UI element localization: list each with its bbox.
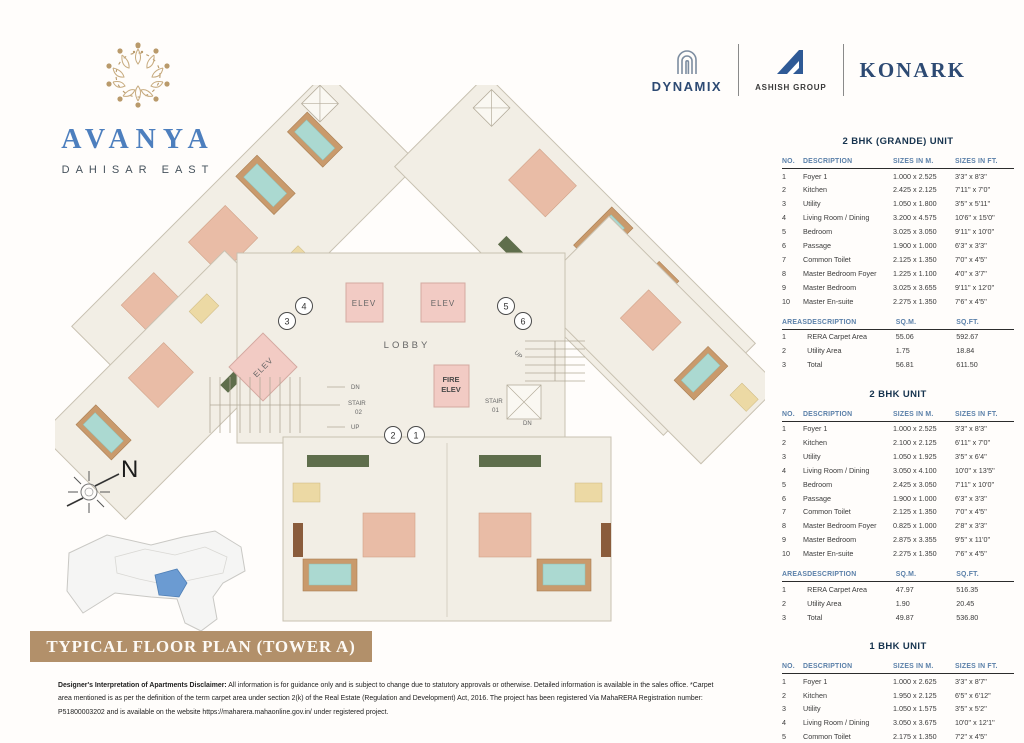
unit-marker: 4: [296, 298, 313, 315]
table-cell: Living Room / Dining: [803, 463, 893, 477]
column-header: DESCRIPTION: [807, 569, 896, 582]
column-header: SIZES IN M.: [893, 156, 955, 169]
table-row: 2Utility Area1.9020.45: [782, 596, 1014, 610]
unit-tables-column: 2 BHK (GRANDE) UNIT NO.DESCRIPTIONSIZES …: [782, 136, 1014, 743]
table-cell: 3'5'' x 5'2'': [955, 702, 1014, 716]
table-cell: 6: [782, 238, 803, 252]
table-cell: Master Bedroom Foyer: [803, 266, 893, 280]
table-cell: Total: [807, 610, 896, 624]
table-cell: 3'3'' x 8'7'': [955, 674, 1014, 688]
table-cell: 1.900 x 1.000: [893, 491, 955, 505]
table-cell: Living Room / Dining: [803, 211, 893, 225]
table-cell: 10'0'' x 12'1'': [955, 716, 1014, 730]
table-cell: 2.175 x 1.350: [893, 730, 955, 743]
table-cell: 49.87: [896, 610, 957, 624]
table-cell: 516.35: [956, 582, 1014, 596]
table-cell: 20.45: [956, 596, 1014, 610]
table-row: 6Passage1.900 x 1.0006'3'' x 3'3'': [782, 238, 1014, 252]
table-cell: 56.81: [896, 358, 957, 372]
stair01-dn-label: DN: [523, 421, 532, 427]
table-cell: Kitchen: [803, 688, 893, 702]
column-header: DESCRIPTION: [803, 409, 893, 422]
table-cell: 9'11'' x 12'0'': [955, 280, 1014, 294]
table-cell: 2.275 x 1.350: [893, 547, 955, 561]
table-cell: 3.025 x 3.655: [893, 280, 955, 294]
table-cell: Bedroom: [803, 477, 893, 491]
table-cell: Kitchen: [803, 435, 893, 449]
table-cell: Utility Area: [807, 344, 896, 358]
column-header: SIZES IN FT.: [955, 661, 1014, 674]
unit-section-2bhk-grande: 2 BHK (GRANDE) UNIT NO.DESCRIPTIONSIZES …: [782, 136, 1014, 372]
table-cell: 536.80: [956, 610, 1014, 624]
column-header: NO.: [782, 156, 803, 169]
table-cell: 6'11'' x 7'0'': [955, 435, 1014, 449]
table-row: 2Kitchen1.950 x 2.1256'5'' x 6'12'': [782, 688, 1014, 702]
table-cell: 2.275 x 1.350: [893, 294, 955, 308]
table-cell: 3'5'' x 6'4'': [955, 449, 1014, 463]
unit-section-2bhk: 2 BHK UNIT NO.DESCRIPTIONSIZES IN M.SIZE…: [782, 389, 1014, 625]
table-cell: 3: [782, 702, 803, 716]
column-header: SQ.FT.: [956, 317, 1014, 330]
table-cell: Common Toilet: [803, 505, 893, 519]
table-row: 3Total49.87536.80: [782, 610, 1014, 624]
table-row: 3Total56.81611.50: [782, 358, 1014, 372]
table-row: 9Master Bedroom3.025 x 3.6559'11'' x 12'…: [782, 280, 1014, 294]
table-cell: 3.025 x 3.050: [893, 225, 955, 239]
svg-text:3: 3: [284, 317, 289, 327]
table-cell: Passage: [803, 491, 893, 505]
table-row: 4Living Room / Dining3.200 x 4.57510'6''…: [782, 211, 1014, 225]
unit-marker: 1: [408, 427, 425, 444]
unit-marker: 5: [498, 298, 515, 315]
table-cell: 5: [782, 477, 803, 491]
table-cell: 1: [782, 169, 803, 183]
column-header: DESCRIPTION: [807, 317, 896, 330]
lobby-label: LOBBY: [384, 340, 431, 351]
table-cell: 2.125 x 1.350: [893, 505, 955, 519]
table-cell: 2: [782, 688, 803, 702]
table-cell: 7'6'' x 4'5'': [955, 547, 1014, 561]
unit-marker: 3: [279, 313, 296, 330]
table-cell: 10: [782, 547, 803, 561]
table-row: 8Master Bedroom Foyer1.225 x 1.1004'0'' …: [782, 266, 1014, 280]
table-cell: 1: [782, 674, 803, 688]
table-cell: 7'11'' x 7'0'': [955, 183, 1014, 197]
table-row: 3Utility1.050 x 1.9253'5'' x 6'4'': [782, 449, 1014, 463]
table-row: 4Living Room / Dining3.050 x 4.10010'0''…: [782, 463, 1014, 477]
site-key-map: [67, 531, 245, 631]
table-cell: 3: [782, 610, 807, 624]
table-cell: 1.000 x 2.625: [893, 674, 955, 688]
table-cell: 8: [782, 519, 803, 533]
sizes-table: NO.DESCRIPTIONSIZES IN M.SIZES IN FT.1Fo…: [782, 661, 1014, 743]
table-row: 5Bedroom2.425 x 3.0507'11'' x 10'0'': [782, 477, 1014, 491]
table-cell: 2.125 x 1.350: [893, 252, 955, 266]
table-cell: 2.100 x 2.125: [893, 435, 955, 449]
table-cell: Master Bedroom Foyer: [803, 519, 893, 533]
disclaimer-lead: Designer's Interpretation of Apartments …: [58, 682, 227, 689]
table-cell: 2: [782, 344, 807, 358]
table-row: 1Foyer 11.000 x 2.5253'3'' x 8'3'': [782, 421, 1014, 435]
table-row: 6Passage1.900 x 1.0006'3'' x 3'3'': [782, 491, 1014, 505]
table-cell: Master Bedroom: [803, 280, 893, 294]
table-cell: 3'5'' x 5'11'': [955, 197, 1014, 211]
table-cell: 7'11'' x 10'0'': [955, 477, 1014, 491]
stair02-dn-label: DN: [351, 385, 360, 391]
table-cell: 1.050 x 1.800: [893, 197, 955, 211]
table-cell: 1.000 x 2.525: [893, 421, 955, 435]
table-cell: 10: [782, 294, 803, 308]
table-cell: 7'6'' x 4'5'': [955, 294, 1014, 308]
table-cell: 2: [782, 435, 803, 449]
table-cell: Master En-suite: [803, 294, 893, 308]
column-header: AREAS: [782, 569, 807, 582]
table-cell: 5: [782, 730, 803, 743]
table-cell: 1.90: [896, 596, 957, 610]
table-cell: Master Bedroom: [803, 533, 893, 547]
stair01-number: 01: [492, 407, 499, 414]
table-cell: Total: [807, 358, 896, 372]
table-row: 1Foyer 11.000 x 2.5253'3'' x 8'3'': [782, 169, 1014, 183]
table-cell: Utility Area: [807, 596, 896, 610]
ashish-group-wordmark: ASHISH GROUP: [755, 83, 826, 92]
floor-plan-drawing: ELEV ELEV ELEV FIRE ELEV LOBBY: [55, 85, 765, 633]
table-cell: 7'2'' x 4'5'': [955, 730, 1014, 743]
table-row: 2Utility Area1.7518.84: [782, 344, 1014, 358]
svg-text:6: 6: [520, 317, 525, 327]
sizes-table: NO.DESCRIPTIONSIZES IN M.SIZES IN FT.1Fo…: [782, 156, 1014, 308]
table-row: 8Master Bedroom Foyer0.825 x 1.0002'8'' …: [782, 519, 1014, 533]
table-cell: 8: [782, 266, 803, 280]
floor-plan-banner: TYPICAL FLOOR PLAN (TOWER A): [30, 631, 372, 662]
table-cell: 4: [782, 211, 803, 225]
table-cell: 3.050 x 4.100: [893, 463, 955, 477]
column-header: DESCRIPTION: [803, 156, 893, 169]
table-cell: 7'0'' x 4'5'': [955, 252, 1014, 266]
table-cell: 7'0'' x 4'5'': [955, 505, 1014, 519]
column-header: AREAS: [782, 317, 807, 330]
table-cell: 2.425 x 3.050: [893, 477, 955, 491]
column-header: SIZES IN FT.: [955, 156, 1014, 169]
column-header: NO.: [782, 661, 803, 674]
column-header: NO.: [782, 409, 803, 422]
table-cell: 4: [782, 463, 803, 477]
column-header: DESCRIPTION: [803, 661, 893, 674]
ashish-group-logo: ASHISH GROUP: [755, 48, 826, 92]
table-cell: 611.50: [956, 358, 1014, 372]
table-cell: Bedroom: [803, 225, 893, 239]
table-cell: 5: [782, 225, 803, 239]
table-cell: 55.06: [896, 329, 957, 343]
table-cell: Common Toilet: [803, 730, 893, 743]
stair02-up-label: UP: [351, 425, 359, 431]
table-cell: 1: [782, 329, 807, 343]
table-row: 2Kitchen2.425 x 2.1257'11'' x 7'0'': [782, 183, 1014, 197]
table-cell: Kitchen: [803, 183, 893, 197]
disclaimer-text: Designer's Interpretation of Apartments …: [58, 679, 716, 719]
column-header: SIZES IN FT.: [955, 409, 1014, 422]
table-cell: 6: [782, 491, 803, 505]
table-cell: 1: [782, 582, 807, 596]
table-row: 3Utility1.050 x 1.8003'5'' x 5'11'': [782, 197, 1014, 211]
table-cell: 1: [782, 421, 803, 435]
table-cell: RERA Carpet Area: [807, 582, 896, 596]
svg-text:4: 4: [301, 302, 306, 312]
ashish-group-a-icon: [773, 48, 809, 80]
table-cell: 1.900 x 1.000: [893, 238, 955, 252]
table-cell: Utility: [803, 449, 893, 463]
table-row: 4Living Room / Dining3.050 x 3.67510'0''…: [782, 716, 1014, 730]
table-cell: 1.75: [896, 344, 957, 358]
table-cell: 3'3'' x 8'3'': [955, 421, 1014, 435]
table-row: 5Common Toilet2.175 x 1.3507'2'' x 4'5'': [782, 730, 1014, 743]
table-row: 3Utility1.050 x 1.5753'5'' x 5'2'': [782, 702, 1014, 716]
compass-north-label: N: [121, 456, 138, 483]
table-cell: 47.97: [896, 582, 957, 596]
table-cell: 2'8'' x 3'3'': [955, 519, 1014, 533]
table-cell: 9: [782, 533, 803, 547]
table-cell: 2.425 x 2.125: [893, 183, 955, 197]
table-cell: 3.200 x 4.575: [893, 211, 955, 225]
sizes-table: NO.DESCRIPTIONSIZES IN M.SIZES IN FT.1Fo…: [782, 409, 1014, 561]
svg-text:5: 5: [503, 302, 508, 312]
table-cell: 1.050 x 1.575: [893, 702, 955, 716]
konark-logo: KONARK: [860, 58, 967, 83]
table-cell: 1.000 x 2.525: [893, 169, 955, 183]
column-header: SQ.M.: [896, 317, 957, 330]
table-row: 10Master En-suite2.275 x 1.3507'6'' x 4'…: [782, 294, 1014, 308]
unit-table-title: 1 BHK UNIT: [782, 641, 1014, 652]
svg-text:2: 2: [390, 431, 395, 441]
table-cell: 7: [782, 252, 803, 266]
table-cell: 3: [782, 358, 807, 372]
unit-table-title: 2 BHK (GRANDE) UNIT: [782, 136, 1014, 147]
table-row: 1RERA Carpet Area55.06592.67: [782, 329, 1014, 343]
fire-elevator-label: ELEV: [441, 385, 461, 394]
table-row: 5Bedroom3.025 x 3.0509'11'' x 10'0'': [782, 225, 1014, 239]
table-cell: 6'3'' x 3'3'': [955, 491, 1014, 505]
table-cell: 2: [782, 183, 803, 197]
column-header: SIZES IN M.: [893, 409, 955, 422]
table-cell: Utility: [803, 702, 893, 716]
table-cell: 10'0'' x 13'5'': [955, 463, 1014, 477]
column-header: SIZES IN M.: [893, 661, 955, 674]
table-cell: Foyer 1: [803, 169, 893, 183]
table-cell: 592.67: [956, 329, 1014, 343]
table-cell: Common Toilet: [803, 252, 893, 266]
brochure-page: AVANYA DAHISAR EAST DYNAMIX ASHISH GROUP: [0, 0, 1024, 743]
table-cell: Master En-suite: [803, 547, 893, 561]
konark-wordmark: KONARK: [860, 58, 967, 83]
table-cell: 18.84: [956, 344, 1014, 358]
table-cell: 9'5'' x 11'0'': [955, 533, 1014, 547]
stair02-number: 02: [355, 409, 362, 416]
table-cell: RERA Carpet Area: [807, 329, 896, 343]
table-cell: Utility: [803, 197, 893, 211]
areas-table: AREASDESCRIPTIONSQ.M.SQ.FT.1RERA Carpet …: [782, 569, 1014, 624]
unit-table-title: 2 BHK UNIT: [782, 389, 1014, 400]
dynamix-arch-icon: [670, 46, 704, 76]
table-cell: 4: [782, 716, 803, 730]
table-row: 7Common Toilet2.125 x 1.3507'0'' x 4'5'': [782, 505, 1014, 519]
table-cell: 7: [782, 505, 803, 519]
svg-text:1: 1: [413, 431, 418, 441]
table-cell: 3: [782, 449, 803, 463]
table-row: 2Kitchen2.100 x 2.1256'11'' x 7'0'': [782, 435, 1014, 449]
table-cell: 1.225 x 1.100: [893, 266, 955, 280]
stair-label: STAIR: [485, 398, 503, 405]
table-cell: 3: [782, 197, 803, 211]
table-cell: Foyer 1: [803, 674, 893, 688]
table-row: 9Master Bedroom2.875 x 3.3559'5'' x 11'0…: [782, 533, 1014, 547]
unit-marker: 6: [515, 313, 532, 330]
unit-section-1bhk: 1 BHK UNIT NO.DESCRIPTIONSIZES IN M.SIZE…: [782, 641, 1014, 743]
unit-marker: 2: [385, 427, 402, 444]
table-cell: 9: [782, 280, 803, 294]
table-cell: 10'6'' x 15'0'': [955, 211, 1014, 225]
table-cell: Foyer 1: [803, 421, 893, 435]
areas-table: AREASDESCRIPTIONSQ.M.SQ.FT.1RERA Carpet …: [782, 317, 1014, 372]
banner-title: TYPICAL FLOOR PLAN (TOWER A): [46, 637, 355, 657]
logo-divider: [843, 44, 844, 96]
column-header: SQ.M.: [896, 569, 957, 582]
stair-label: STAIR: [348, 400, 366, 407]
table-cell: Living Room / Dining: [803, 716, 893, 730]
table-cell: 3.050 x 3.675: [893, 716, 955, 730]
table-row: 10Master En-suite2.275 x 1.3507'6'' x 4'…: [782, 547, 1014, 561]
table-cell: 1.950 x 2.125: [893, 688, 955, 702]
fire-elevator-label: FIRE: [442, 375, 459, 384]
table-cell: 0.825 x 1.000: [893, 519, 955, 533]
table-cell: 2.875 x 3.355: [893, 533, 955, 547]
table-cell: 4'0'' x 3'7'': [955, 266, 1014, 280]
elevator-label: ELEV: [431, 299, 455, 308]
table-cell: 6'3'' x 3'3'': [955, 238, 1014, 252]
table-cell: 6'5'' x 6'12'': [955, 688, 1014, 702]
elevator-label: ELEV: [352, 299, 376, 308]
table-row: 1Foyer 11.000 x 2.6253'3'' x 8'7'': [782, 674, 1014, 688]
table-cell: Passage: [803, 238, 893, 252]
table-row: 7Common Toilet2.125 x 1.3507'0'' x 4'5'': [782, 252, 1014, 266]
table-cell: 2: [782, 596, 807, 610]
table-cell: 1.050 x 1.925: [893, 449, 955, 463]
table-cell: 3'3'' x 8'3'': [955, 169, 1014, 183]
table-row: 1RERA Carpet Area47.97516.35: [782, 582, 1014, 596]
column-header: SQ.FT.: [956, 569, 1014, 582]
table-cell: 9'11'' x 10'0'': [955, 225, 1014, 239]
